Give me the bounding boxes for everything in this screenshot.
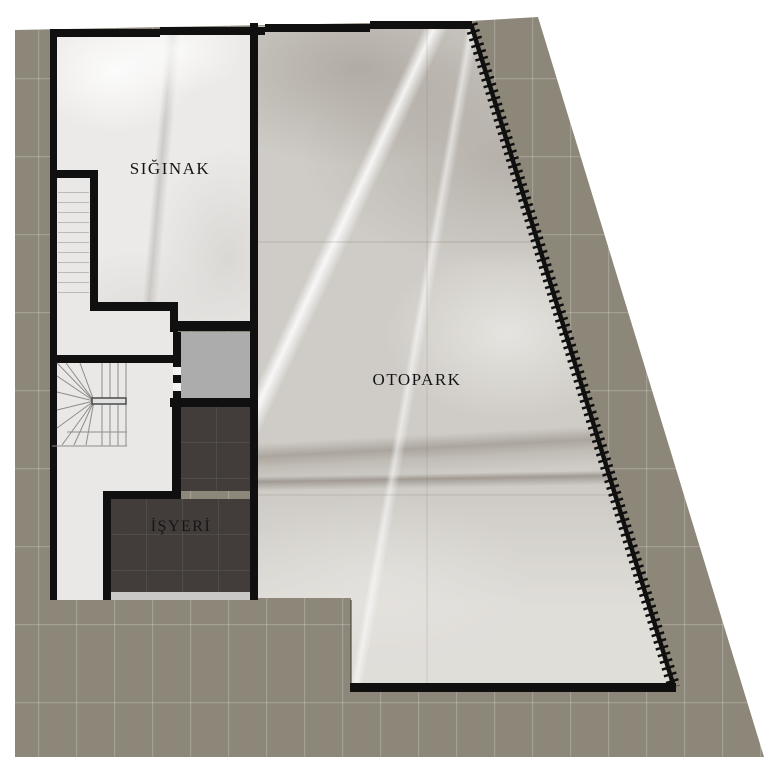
isyeri-label: İŞYERİ — [151, 518, 212, 536]
otopark-label: OTOPARK — [373, 370, 462, 390]
slanted-wall — [471, 24, 674, 687]
siginak-label: SIĞINAK — [130, 159, 210, 179]
floor-plan-canvas: SIĞINAK OTOPARK İŞYERİ — [0, 0, 768, 769]
